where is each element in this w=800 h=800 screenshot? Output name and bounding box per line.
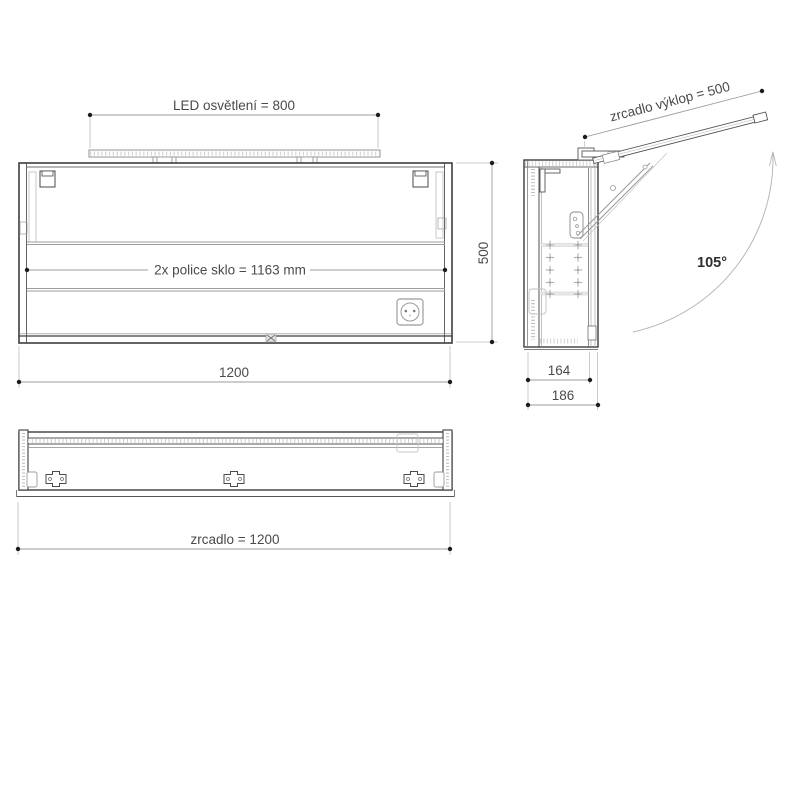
height-dim-label: 500 [476, 242, 491, 265]
tilt-dim-label: zrcadlo výklop = 500 [608, 79, 731, 125]
side-tilt-dimension: zrcadlo výklop = 500 [583, 79, 764, 139]
technical-drawing: LED osvětlení = 800 [0, 0, 800, 800]
angle-label: 105° [697, 255, 727, 271]
inner-depth-dim-label: 164 [548, 363, 571, 378]
bottom-width-dimension: zrcadlo = 1200 [16, 502, 452, 555]
led-dim-label: LED osvětlení = 800 [173, 98, 295, 113]
drawing-canvas: LED osvětlení = 800 [0, 0, 800, 800]
bottom-cabinet-body [17, 430, 455, 497]
shelf-dim-label: 2x police sklo = 1163 mm [154, 263, 306, 278]
door-clip-icon-left [40, 171, 55, 187]
hinge-plate-icon [570, 212, 583, 238]
latch-icon [266, 334, 276, 342]
power-socket-icon [397, 299, 423, 325]
width-dim-label: 1200 [219, 365, 249, 380]
front-height-dimension: 500 [456, 161, 498, 344]
outer-depth-dim-label: 186 [552, 388, 575, 403]
mirror-width-dim-label: zrcadlo = 1200 [191, 532, 280, 547]
swing-arc-arrow-icon: 105° [633, 152, 776, 332]
side-cabinet-body [524, 160, 598, 350]
bottom-view: zrcadlo = 1200 [16, 430, 455, 555]
door-end-cap [753, 112, 768, 123]
front-view: LED osvětlení = 800 [17, 98, 498, 388]
front-led-dimension: LED osvětlení = 800 [88, 98, 380, 148]
door-clip-icon-right [413, 171, 428, 187]
front-width-dimension: 1200 [17, 346, 452, 388]
front-cabinet-body [19, 163, 452, 343]
side-view: zrcadlo výklop = 500 105° 164 186 [524, 79, 776, 410]
side-depth-dimensions: 164 186 [526, 352, 600, 410]
